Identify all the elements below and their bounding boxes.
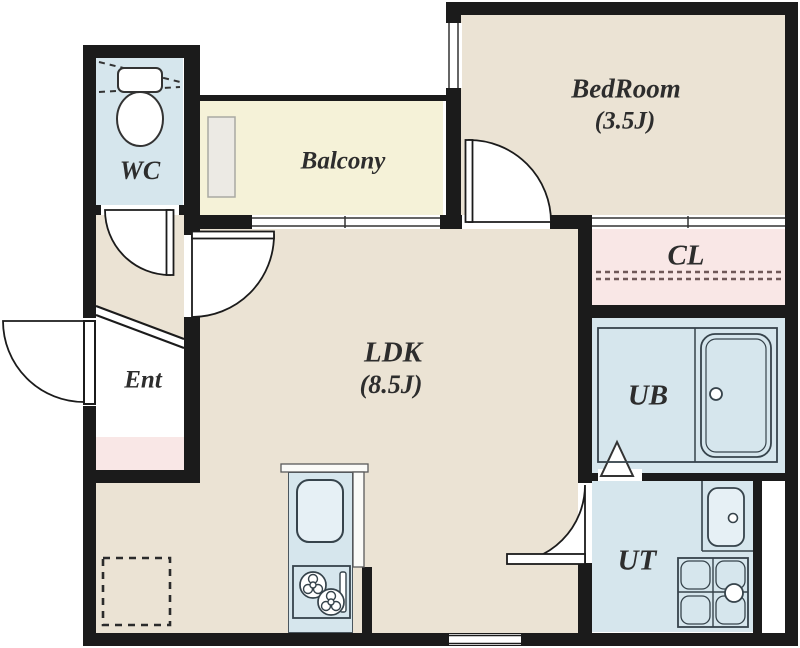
gas-stove-icon	[293, 566, 350, 618]
wc-door-swing	[105, 210, 174, 275]
bedroom-label: BedRoom	[571, 76, 681, 103]
entrance-label: Ent	[124, 368, 162, 393]
balcony-window	[252, 215, 440, 229]
entrance-door-swing	[3, 321, 95, 404]
entrance-step	[96, 306, 184, 348]
balcony-label: Balcony	[301, 149, 386, 174]
refrigerator-space-icon	[103, 558, 170, 625]
ldk-label: LDK	[364, 339, 422, 368]
utility-label: UT	[618, 547, 657, 576]
utility-door-swing	[507, 485, 585, 564]
washbasin-icon	[702, 481, 753, 551]
ldk-bottom-window	[449, 634, 521, 645]
kitchen-sink-icon	[297, 480, 343, 542]
hallway-door-swing	[192, 232, 274, 318]
bedroom-door-swing	[466, 140, 552, 222]
closet-label: CL	[667, 242, 704, 271]
closet-hanger-lines	[596, 272, 781, 279]
bathtub-icon	[598, 328, 777, 462]
bedroom-size-label: (3.5J)	[595, 109, 655, 134]
ldk-size-label: (8.5J)	[360, 372, 423, 398]
wc-label: WC	[120, 158, 160, 184]
closet-sliding-door	[592, 215, 785, 229]
washing-machine-pan-icon	[678, 558, 748, 627]
unit-bath-label: UB	[628, 382, 668, 411]
floor-plan: WC Balcony BedRoom (3.5J) CL LDK (8.5J) …	[0, 0, 800, 648]
storage-panel-icon	[208, 117, 235, 197]
bedroom-window	[445, 23, 462, 88]
toilet-icon	[99, 62, 180, 146]
